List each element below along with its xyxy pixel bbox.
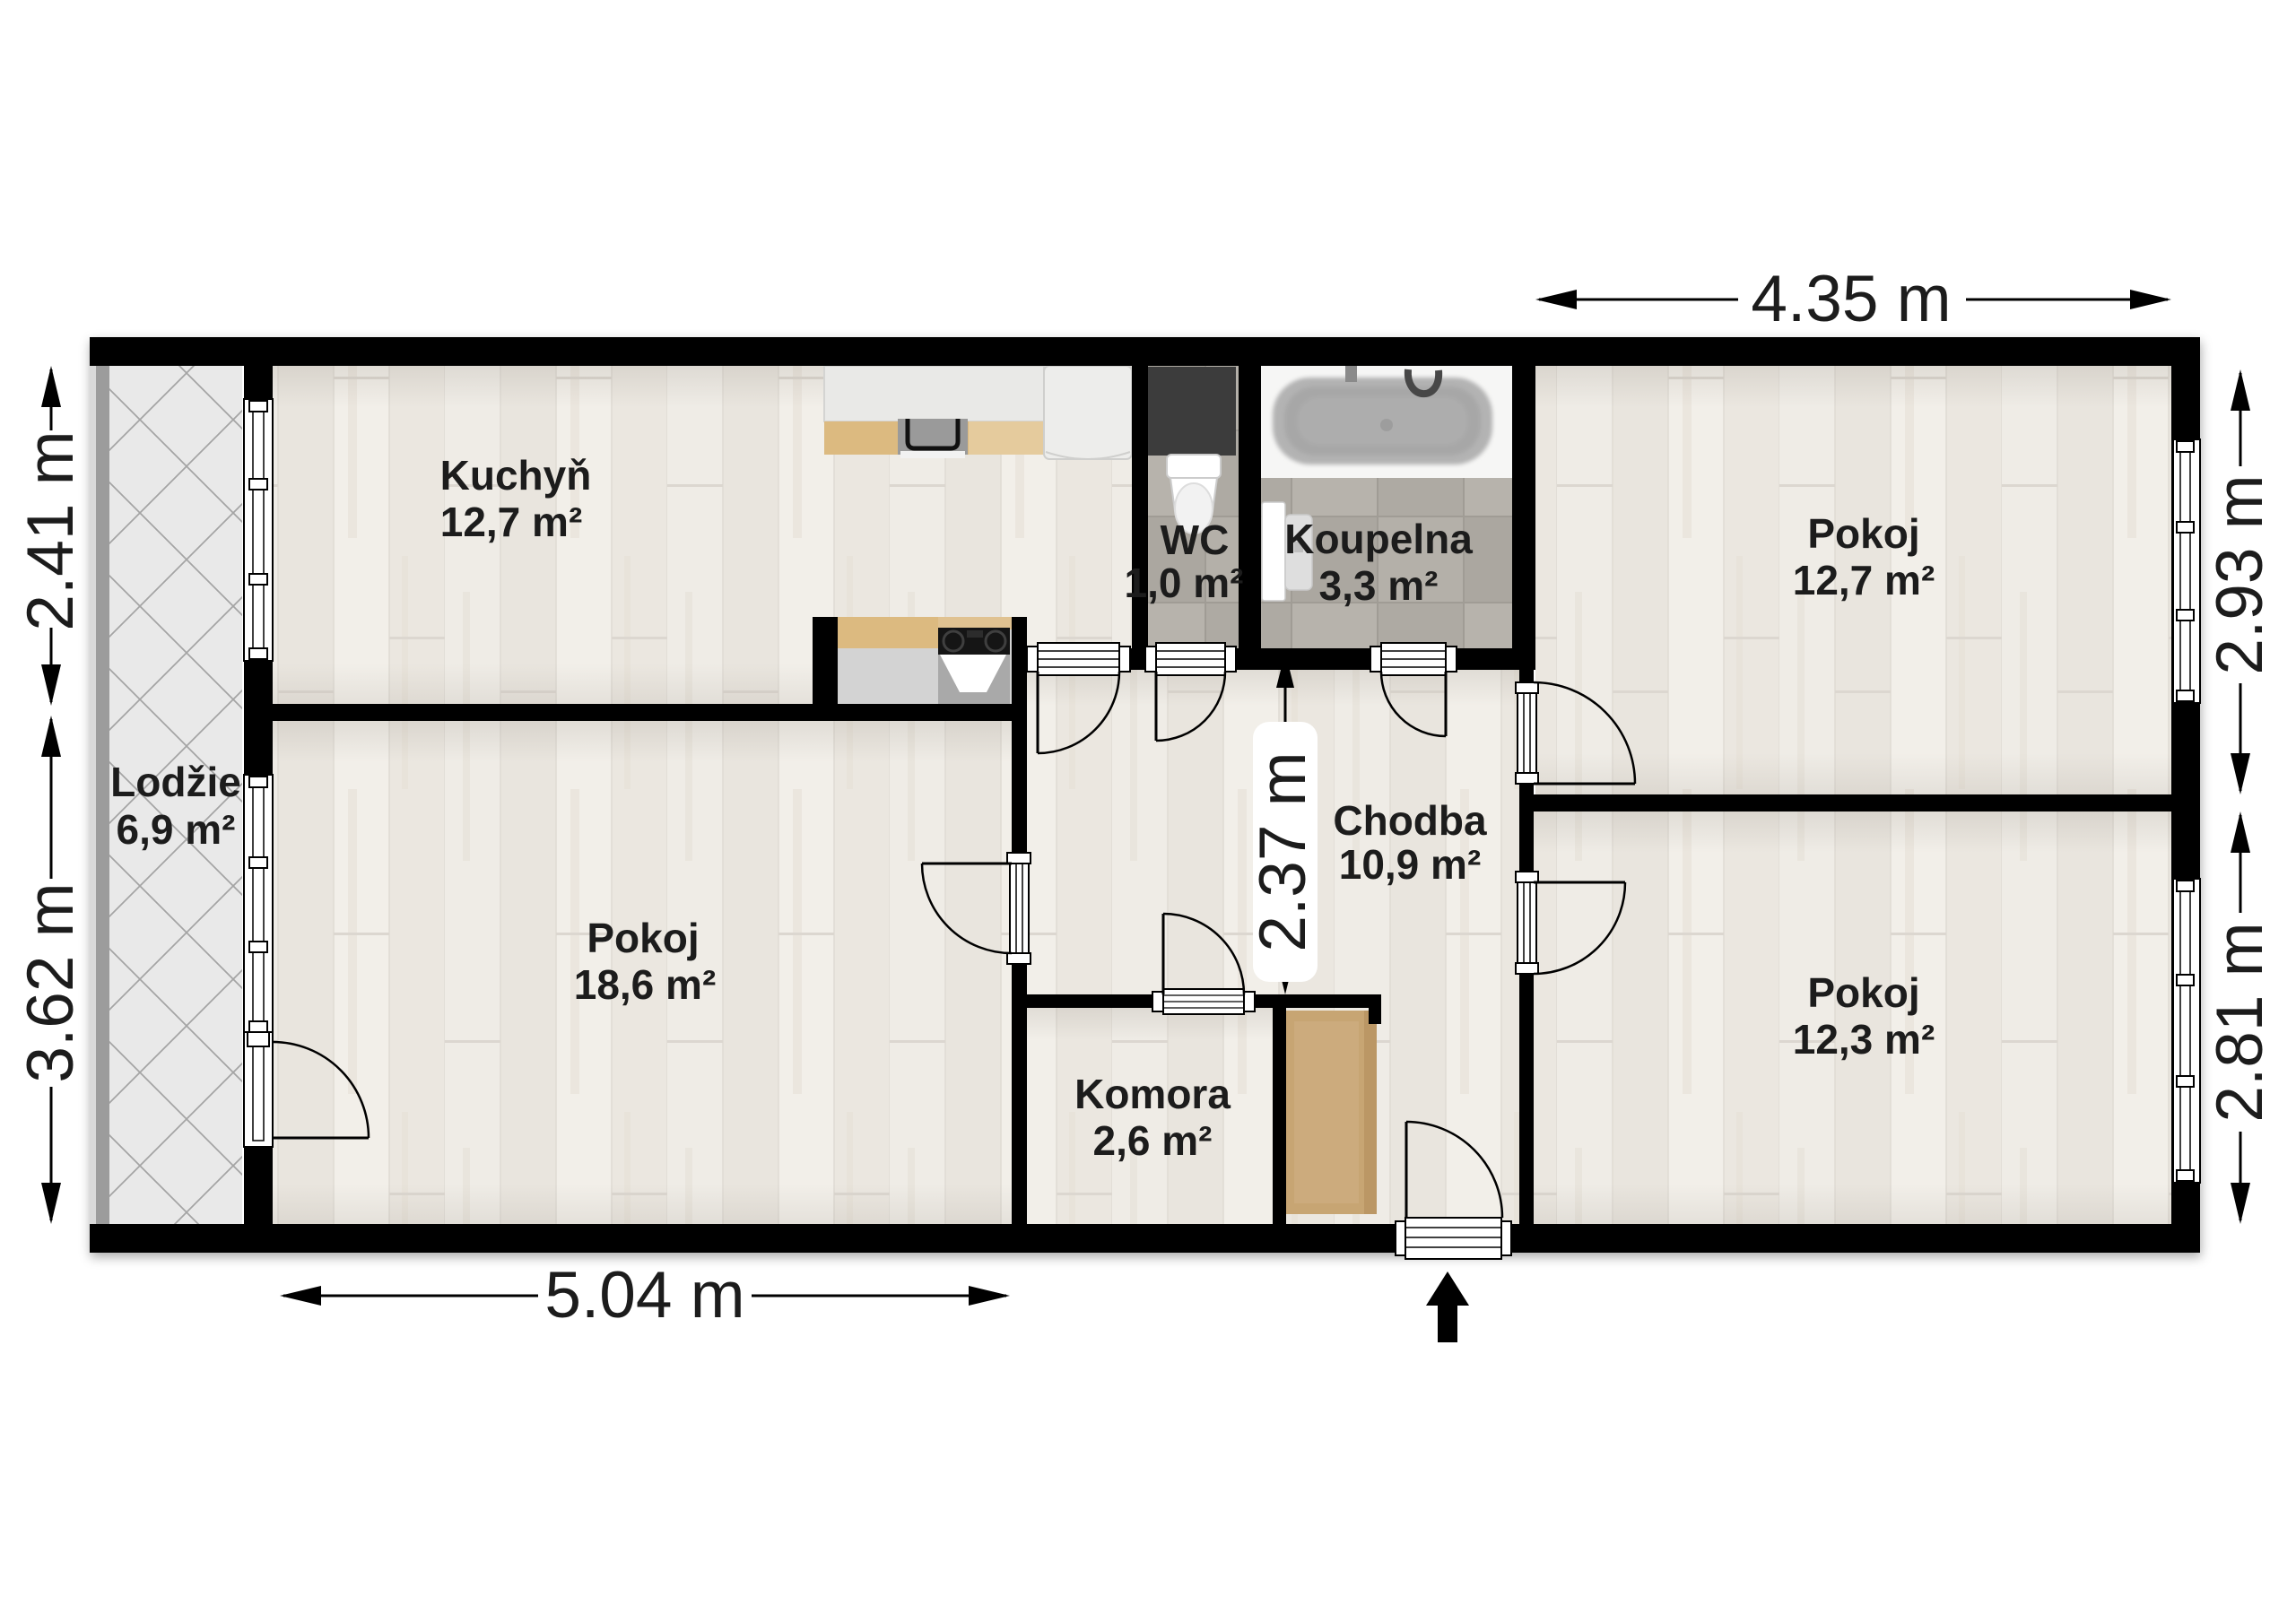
svg-text:5.04 m: 5.04 m — [544, 1259, 744, 1332]
svg-text:10,9 m²: 10,9 m² — [1339, 841, 1482, 888]
svg-text:4.35 m: 4.35 m — [1751, 263, 1951, 335]
svg-text:Pokoj: Pokoj — [1807, 969, 1919, 1016]
svg-text:Kuchyň: Kuchyň — [440, 452, 592, 499]
svg-text:3.62 m: 3.62 m — [14, 882, 87, 1082]
svg-text:2.93 m: 2.93 m — [2204, 474, 2276, 674]
svg-text:Komora: Komora — [1074, 1071, 1231, 1117]
svg-text:12,7 m²: 12,7 m² — [440, 499, 583, 545]
svg-text:WC: WC — [1161, 516, 1230, 563]
svg-text:Lodžie: Lodžie — [110, 759, 241, 805]
svg-text:Chodba: Chodba — [1333, 797, 1487, 844]
svg-text:18,6 m²: 18,6 m² — [574, 961, 717, 1008]
svg-text:12,3 m²: 12,3 m² — [1793, 1016, 1935, 1063]
svg-text:Pokoj: Pokoj — [587, 915, 699, 961]
svg-text:2.81 m: 2.81 m — [2204, 922, 2276, 1122]
svg-text:Koupelna: Koupelna — [1284, 516, 1473, 562]
svg-text:6,9 m²: 6,9 m² — [117, 806, 236, 853]
svg-text:Pokoj: Pokoj — [1807, 510, 1919, 557]
svg-text:3,3 m²: 3,3 m² — [1319, 562, 1439, 609]
svg-text:1,0 m²: 1,0 m² — [1125, 560, 1244, 606]
svg-text:2.37 m: 2.37 m — [1247, 751, 1319, 951]
svg-text:12,7 m²: 12,7 m² — [1793, 557, 1935, 603]
svg-text:2.41 m: 2.41 m — [14, 430, 87, 630]
svg-text:2,6 m²: 2,6 m² — [1093, 1117, 1213, 1164]
